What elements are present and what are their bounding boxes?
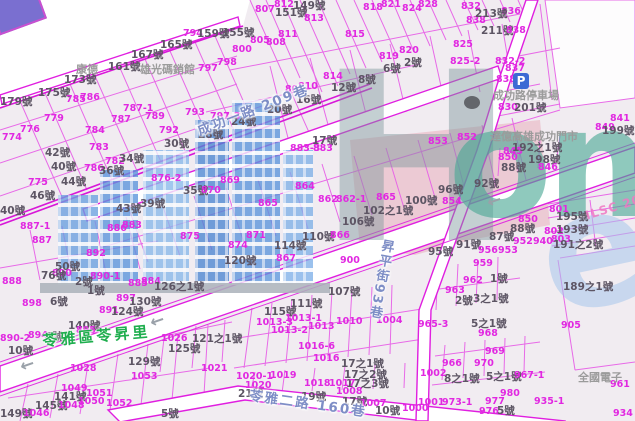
parcel-number-label: 1046: [23, 409, 49, 419]
parcel-number-label: 813: [304, 14, 324, 24]
house-number-label: 88號: [501, 163, 526, 174]
house-number-label: 17之1號: [341, 359, 384, 370]
parcel-number-label: 1052: [106, 399, 132, 409]
watermark-text: ILSC 202: [584, 190, 635, 221]
district-label: 苓雅區苓昇里: [42, 325, 151, 349]
parcel-number-label: 862: [318, 195, 338, 205]
parcel-number-label: 883: [122, 221, 142, 231]
parcel-number-label: 973-1: [442, 398, 472, 408]
house-number-label: 6號: [50, 297, 68, 308]
house-number-label: 192之1號: [512, 143, 562, 154]
parcel-number-label: 1019: [270, 371, 296, 381]
parking-icon: P: [513, 73, 529, 89]
parcel-number-label: 800: [232, 45, 252, 55]
house-number-label: 213號: [475, 9, 507, 20]
house-number-label: 44號: [61, 177, 86, 188]
parcel-number-label: 888: [2, 277, 22, 287]
parcel-number-label: 815: [345, 30, 365, 40]
parcel-number-label: 900: [340, 256, 360, 266]
parcel-number-label: 784: [85, 126, 105, 136]
house-number-label: 43號: [116, 204, 141, 215]
parcel-number-label: 940: [533, 237, 553, 247]
parcel-number-label: 956: [478, 246, 498, 256]
house-number-label: 92號: [474, 179, 499, 190]
house-number-label: 201號: [514, 103, 546, 114]
parcel-number-label: 952: [513, 237, 533, 247]
parcel-number-label: 825-2: [450, 57, 480, 67]
poi-label: 成功路停車場: [493, 90, 559, 101]
parcel-number-label: 890-1: [90, 272, 120, 282]
parcel-number-label: 820: [399, 46, 419, 56]
house-number-label: 2號: [455, 296, 473, 307]
poi-label: 全國電子: [578, 372, 622, 383]
parcel-number-label: 890-2: [0, 334, 30, 344]
house-number-label: 96號: [438, 185, 463, 196]
parcel-number-label: 807: [255, 5, 275, 15]
parcel-number-label: 1000: [402, 404, 428, 414]
parcel-number-label: 959: [473, 259, 493, 269]
parcel-number-label: 953: [498, 246, 518, 256]
parcel-number-label: 887: [32, 236, 52, 246]
parcel-number-label: 786: [80, 93, 100, 103]
house-number-label: 114號: [274, 241, 306, 252]
parcel-number-label: 774: [2, 133, 22, 143]
parcel-number-label: 887-1: [20, 222, 50, 232]
parcel-number-label: 846: [538, 163, 558, 173]
house-number-label: 2號: [404, 58, 422, 69]
parcel-number-label: 935-1: [534, 397, 564, 407]
house-number-label: 8之1號: [444, 374, 480, 385]
house-number-label: 102之1號: [363, 206, 413, 217]
parcel-number-label: 883: [313, 144, 333, 154]
parcel-number-label: 793: [185, 108, 205, 118]
parcel-number-label: 854: [442, 197, 462, 207]
house-number-label: 179號: [0, 97, 32, 108]
road-name-label: 昇平街93巷: [367, 238, 394, 321]
parcel-number-label: 1016-6: [298, 342, 335, 352]
house-number-label: 88號: [510, 224, 535, 235]
parcel-number-label: 869: [220, 176, 240, 186]
parcel-number-label: 838: [506, 26, 526, 36]
parcel-number-label: 1016: [313, 354, 339, 364]
house-number-label: 12號: [331, 83, 356, 94]
house-number-label: 6號: [383, 64, 401, 75]
parcel-number-label: 1048: [58, 401, 84, 411]
parcel-number-label: 853: [428, 137, 448, 147]
house-number-label: 191之2號: [553, 240, 603, 251]
parcel-number-label: 825: [453, 40, 473, 50]
parcel-number-label: 814: [323, 72, 343, 82]
parcel-number-label: 934: [613, 409, 633, 419]
house-number-label: 5號: [161, 409, 179, 420]
parcel-number-label: 821: [381, 0, 401, 10]
house-number-label: 46號: [30, 191, 55, 202]
house-number-label: 8號: [358, 75, 376, 86]
parcel-number-label: 775: [28, 178, 48, 188]
house-number-label: 30號: [164, 139, 189, 150]
parcel-number-label: 875: [180, 232, 200, 242]
parcel-number-label: 968: [478, 329, 498, 339]
parcel-number-label: 776: [20, 125, 40, 135]
road-direction-arrow-icon: ←: [18, 355, 37, 376]
house-number-label: 126之1號: [154, 282, 204, 293]
poi-label: 雄光碼銷館: [140, 64, 195, 75]
parcel-number-label: 970: [474, 359, 494, 369]
parcel-number-label: 967-1: [514, 371, 544, 381]
poi-label: 達億高雄成功門市: [490, 131, 578, 142]
house-number-label: 173號: [64, 75, 96, 86]
house-number-label: 125號: [168, 344, 200, 355]
house-number-label: 42號: [45, 148, 70, 159]
parcel-number-label: 1002: [420, 369, 446, 379]
parcel-number-label: 969: [485, 347, 505, 357]
parcel-number-label: 867: [276, 254, 296, 264]
parcel-number-label: 828: [418, 0, 438, 10]
parcel-number-label: 865: [376, 193, 396, 203]
house-number-label: 159號: [197, 29, 229, 40]
parcel-number-label: 797: [198, 64, 218, 74]
house-number-label: 1號: [87, 286, 105, 297]
house-number-label: 40號: [0, 206, 25, 217]
parcel-number-label: 1013-2: [271, 326, 308, 336]
house-number-label: 95號: [428, 247, 453, 258]
parcel-number-label: 862-1: [336, 195, 366, 205]
house-number-label: 151號: [275, 8, 307, 19]
parcel-number-label: 864: [295, 182, 315, 192]
house-number-label: 199號: [602, 126, 634, 137]
house-number-label: 1號: [490, 274, 508, 285]
parcel-number-label: 787: [111, 115, 131, 125]
parcel-number-label: 818: [363, 3, 383, 13]
cadastral-map-canvas[interactable]: H ome e P 807812149號151號8138188218248288…: [0, 0, 635, 421]
road-direction-arrow-icon: ←: [148, 311, 167, 332]
house-number-label: 36號: [99, 166, 124, 177]
parcel-number-label: 865: [258, 199, 278, 209]
house-number-label: 189之1號: [563, 282, 613, 293]
parcel-number-label: 976: [479, 407, 499, 417]
parcel-number-label: 1013: [308, 322, 334, 332]
house-number-label: 5號: [497, 406, 515, 417]
house-number-label: 120號: [224, 256, 256, 267]
house-number-label: 129號: [128, 357, 160, 368]
parcel-number-label: 798: [217, 58, 237, 68]
parcel-number-label: 789: [145, 112, 165, 122]
parcel-number-label: 1021: [201, 364, 227, 374]
house-number-label: 121之1號: [192, 334, 242, 345]
parcel-number-label: 850: [518, 215, 538, 225]
parcel-number-label: 852: [457, 133, 477, 143]
parcel-number-label: 870: [201, 186, 221, 196]
parcel-number-label: 792: [159, 126, 179, 136]
house-number-label: 10號: [375, 406, 400, 417]
house-number-label: 76號: [41, 271, 66, 282]
house-number-label: 39號: [140, 199, 165, 210]
house-number-label: 165號: [160, 40, 192, 51]
parcel-number-label: 1010: [336, 317, 362, 327]
parcel-number-label: 962: [463, 276, 483, 286]
parcel-number-label: 866: [330, 231, 350, 241]
parcel-number-label: 1028: [70, 364, 96, 374]
parcel-number-label: 965-3: [418, 320, 448, 330]
house-number-label: 106號: [342, 217, 374, 228]
parcel-number-label: 905: [561, 321, 581, 331]
house-number-label: 124號: [111, 307, 143, 318]
parcel-number-label: 819: [379, 52, 399, 62]
parcel-number-label: 876-2: [151, 174, 181, 184]
parcel-number-label: 779: [44, 114, 64, 124]
house-number-label: 34號: [119, 154, 144, 165]
parcel-number-label: 892: [86, 249, 106, 259]
map-labels: 807812149號151號81381882182482883283683821…: [0, 0, 635, 421]
house-number-label: 40號: [51, 162, 76, 173]
house-number-label: 195號: [556, 212, 588, 223]
road-direction-arrow-icon: ←: [485, 191, 504, 212]
parcel-number-label: 783: [89, 143, 109, 153]
house-number-label: 167號: [131, 50, 163, 61]
parcel-number-label: 1053: [131, 372, 157, 382]
house-number-label: 3之1號: [473, 294, 509, 305]
parcel-number-label: 874: [228, 241, 248, 251]
parcel-number-label: 871: [246, 231, 266, 241]
parcel-number-label: 1018: [304, 379, 330, 389]
house-number-label: 107號: [328, 287, 360, 298]
house-number-label: 161號: [108, 62, 140, 73]
parcel-number-label: 898: [22, 299, 42, 309]
